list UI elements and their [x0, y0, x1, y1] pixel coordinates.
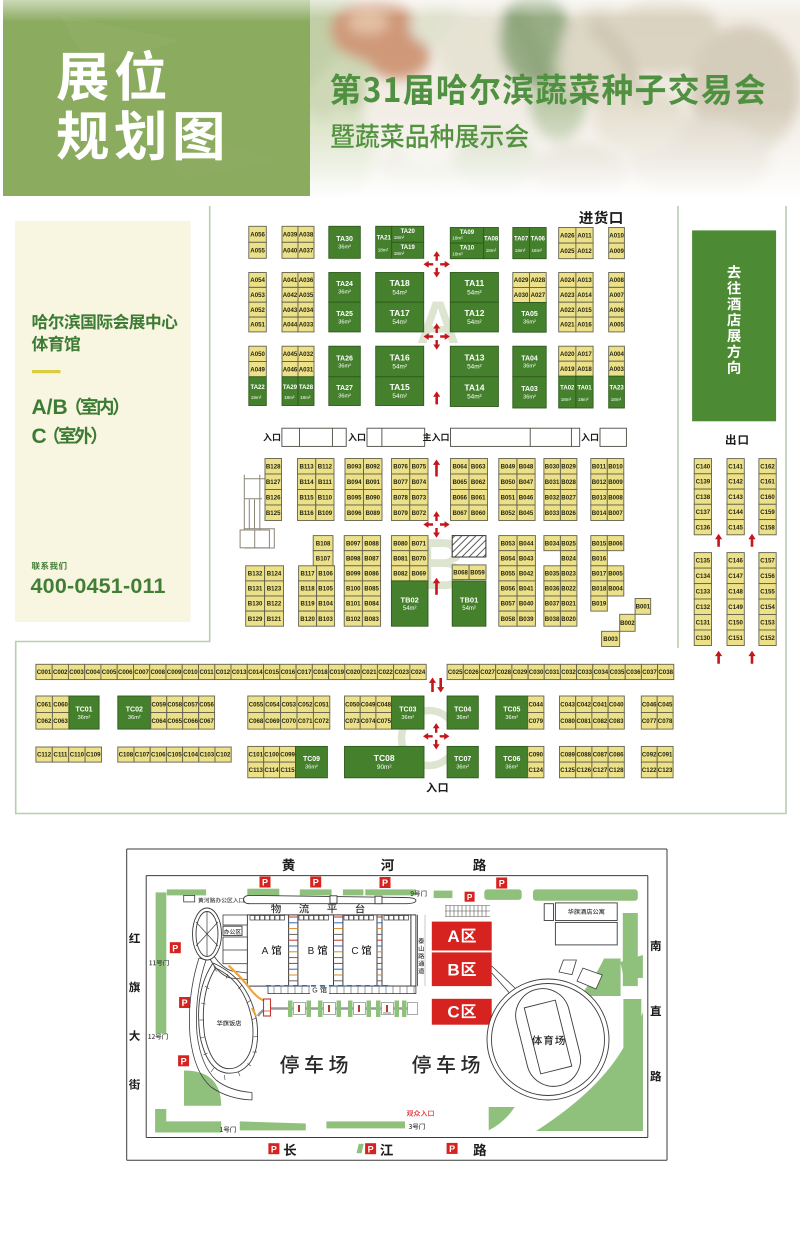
svg-text:B056: B056: [501, 586, 516, 593]
svg-text:B121: B121: [267, 616, 282, 623]
svg-text:A026: A026: [560, 233, 575, 240]
svg-text:A011: A011: [577, 233, 592, 240]
svg-text:C105: C105: [167, 752, 182, 759]
svg-text:C004: C004: [86, 669, 101, 676]
svg-text:C046: C046: [642, 701, 657, 708]
svg-text:B016: B016: [592, 555, 607, 562]
svg-text:B018: B018: [592, 586, 607, 593]
svg-text:A052: A052: [250, 307, 265, 314]
svg-text:A049: A049: [250, 366, 265, 373]
svg-text:C092: C092: [642, 751, 657, 758]
svg-text:A: A: [262, 946, 269, 957]
svg-text:36m²: 36m²: [456, 764, 469, 770]
svg-text:B043: B043: [519, 555, 534, 562]
svg-text:C066: C066: [183, 718, 198, 725]
svg-text:B010: B010: [608, 463, 623, 470]
svg-text:B113: B113: [299, 463, 314, 470]
svg-text:C154: C154: [760, 604, 775, 611]
svg-text:B129: B129: [248, 616, 263, 623]
svg-text:B086: B086: [364, 571, 379, 578]
svg-text:C073: C073: [345, 718, 360, 725]
svg-text:B012: B012: [592, 479, 607, 486]
svg-text:C029: C029: [513, 669, 528, 676]
svg-text:C104: C104: [183, 752, 198, 759]
svg-text:C142: C142: [728, 479, 743, 486]
svg-text:C124: C124: [529, 767, 544, 774]
svg-text:C132: C132: [696, 604, 711, 611]
svg-text:A031: A031: [299, 366, 314, 373]
svg-text:A044: A044: [283, 322, 298, 329]
svg-text:C031: C031: [545, 669, 560, 676]
svg-text:B006: B006: [608, 540, 623, 547]
svg-text:A045: A045: [283, 351, 298, 358]
svg-text:A008: A008: [609, 277, 624, 284]
svg-text:B068: B068: [453, 569, 468, 576]
svg-text:TA04: TA04: [521, 355, 538, 362]
svg-text:C040: C040: [609, 701, 624, 708]
svg-text:B017: B017: [592, 571, 607, 578]
svg-text:18m²: 18m²: [611, 397, 622, 402]
svg-text:C013: C013: [232, 669, 247, 676]
svg-text:B097: B097: [346, 540, 361, 547]
svg-text:B090: B090: [366, 494, 381, 501]
svg-text:C161: C161: [760, 479, 775, 486]
svg-text:C015: C015: [264, 669, 279, 676]
svg-text:54m²: 54m²: [462, 606, 476, 612]
svg-text:36m²: 36m²: [523, 395, 536, 401]
svg-text:B130: B130: [248, 601, 263, 608]
svg-text:C138: C138: [696, 494, 711, 501]
svg-text:C: C: [351, 946, 358, 957]
svg-text:18m²: 18m²: [452, 236, 463, 241]
svg-text:B046: B046: [519, 494, 534, 501]
svg-text:TA24: TA24: [336, 281, 353, 288]
svg-text:B079: B079: [393, 510, 408, 517]
svg-text:TA06: TA06: [531, 237, 546, 243]
svg-text:C064: C064: [152, 718, 167, 725]
svg-text:A010: A010: [609, 233, 624, 240]
svg-text:B047: B047: [519, 479, 534, 486]
svg-text:B091: B091: [366, 479, 381, 486]
svg-text:C102: C102: [216, 752, 231, 759]
svg-text:B118: B118: [300, 586, 315, 593]
svg-text:B126: B126: [266, 494, 281, 501]
svg-text:C056: C056: [199, 701, 214, 708]
svg-text:A038: A038: [299, 232, 314, 239]
svg-text:C060: C060: [53, 701, 68, 708]
svg-text:B109: B109: [318, 510, 333, 517]
svg-text:B128: B128: [266, 463, 281, 470]
svg-text:36m²: 36m²: [128, 715, 141, 721]
svg-text:C090: C090: [529, 751, 544, 758]
svg-text:P: P: [262, 878, 268, 888]
svg-text:B049: B049: [501, 463, 516, 470]
svg-text:A013: A013: [577, 277, 592, 284]
svg-text:C109: C109: [86, 752, 101, 759]
svg-text:TA22: TA22: [250, 385, 265, 391]
svg-text:B044: B044: [519, 540, 534, 547]
svg-text:A028: A028: [531, 277, 546, 284]
svg-text:C162: C162: [760, 463, 775, 470]
svg-text:TA03: TA03: [521, 386, 538, 393]
svg-text:A055: A055: [250, 248, 265, 255]
svg-text:B045: B045: [519, 510, 534, 517]
svg-text:A043: A043: [283, 307, 298, 314]
svg-text:B077: B077: [393, 479, 408, 486]
svg-text:B040: B040: [519, 601, 534, 608]
svg-text:B100: B100: [346, 586, 361, 593]
svg-text:A034: A034: [299, 307, 314, 314]
svg-text:B013: B013: [592, 494, 607, 501]
svg-text:A007: A007: [609, 292, 624, 299]
svg-text:B115: B115: [299, 494, 314, 501]
svg-text:C101: C101: [249, 751, 264, 758]
svg-text:A051: A051: [250, 322, 265, 329]
svg-text:C091: C091: [658, 751, 673, 758]
svg-text:B011: B011: [592, 463, 607, 470]
svg-text:C128: C128: [609, 767, 624, 774]
svg-text:A039: A039: [283, 232, 298, 239]
svg-text:B014: B014: [592, 510, 607, 517]
svg-text:B028: B028: [561, 479, 576, 486]
svg-text:TB01: TB01: [460, 595, 478, 604]
svg-text:A: A: [447, 927, 459, 946]
svg-text:B059: B059: [470, 569, 485, 576]
svg-text:C012: C012: [216, 669, 231, 676]
svg-text:B076: B076: [393, 463, 408, 470]
svg-text:C043: C043: [560, 701, 575, 708]
svg-text:C106: C106: [151, 752, 166, 759]
svg-text:90m²: 90m²: [377, 764, 392, 771]
svg-text:A003: A003: [609, 366, 624, 373]
svg-text:C145: C145: [728, 524, 743, 531]
svg-text:C050: C050: [345, 701, 360, 708]
svg-text:A018: A018: [577, 366, 592, 373]
svg-text:A017: A017: [577, 351, 592, 358]
svg-text:A050: A050: [250, 351, 265, 358]
svg-text:B066: B066: [453, 494, 468, 501]
svg-text:B023: B023: [561, 571, 576, 578]
svg-text:B112: B112: [318, 463, 333, 470]
svg-text:TA28: TA28: [299, 385, 314, 391]
svg-text:C071: C071: [298, 718, 313, 725]
svg-text:C044: C044: [529, 701, 544, 708]
svg-text:B101: B101: [346, 601, 361, 608]
svg-text:36m²: 36m²: [456, 715, 469, 721]
svg-text:B001: B001: [636, 604, 651, 611]
svg-text:B098: B098: [346, 555, 361, 562]
svg-text:C017: C017: [297, 669, 312, 676]
svg-text:TA15: TA15: [390, 382, 410, 392]
svg-text:C032: C032: [561, 669, 576, 676]
svg-text:18m²: 18m²: [251, 395, 262, 400]
svg-text:B064: B064: [453, 463, 468, 470]
svg-text:C037: C037: [642, 669, 657, 676]
svg-text:TC04: TC04: [454, 706, 471, 713]
svg-text:B026: B026: [561, 510, 576, 517]
svg-text:C141: C141: [728, 463, 743, 470]
svg-text:B065: B065: [453, 479, 468, 486]
svg-text:B110: B110: [318, 494, 333, 501]
svg-text:C068: C068: [249, 718, 264, 725]
svg-text:P: P: [271, 1144, 277, 1154]
svg-text:18m²: 18m²: [452, 251, 463, 256]
svg-text:C079: C079: [529, 718, 544, 725]
svg-text:400-0451-011: 400-0451-011: [31, 574, 166, 598]
svg-text:TA01: TA01: [577, 386, 592, 392]
svg-text:TA08: TA08: [484, 237, 499, 243]
svg-text:C049: C049: [361, 701, 376, 708]
svg-text:B004: B004: [608, 586, 623, 593]
svg-text:C051: C051: [314, 701, 329, 708]
svg-text:B088: B088: [364, 540, 379, 547]
svg-text:B033: B033: [545, 510, 560, 517]
svg-text:TC09: TC09: [303, 756, 320, 763]
svg-text:C038: C038: [658, 669, 673, 676]
svg-text:C148: C148: [728, 589, 743, 596]
svg-text:B020: B020: [561, 616, 576, 623]
svg-text:C053: C053: [282, 701, 297, 708]
svg-text:C137: C137: [696, 509, 711, 516]
svg-text:C055: C055: [249, 701, 264, 708]
svg-text:TA17: TA17: [390, 308, 410, 318]
svg-text:C100: C100: [264, 751, 279, 758]
svg-text:54m²: 54m²: [403, 606, 417, 612]
svg-text:B093: B093: [347, 463, 362, 470]
svg-text:C030: C030: [529, 669, 544, 676]
svg-text:B034: B034: [545, 540, 560, 547]
svg-text:36m²: 36m²: [505, 715, 518, 721]
svg-text:C115: C115: [280, 767, 295, 774]
svg-text:A021: A021: [560, 322, 575, 329]
svg-text:B062: B062: [471, 479, 486, 486]
svg-text:A042: A042: [283, 292, 298, 299]
svg-text:B111: B111: [318, 479, 333, 486]
svg-text:A036: A036: [299, 277, 314, 284]
svg-text:TA02: TA02: [560, 386, 575, 392]
svg-text:B096: B096: [347, 510, 362, 517]
svg-text:C112: C112: [37, 752, 52, 759]
svg-text:36m²: 36m²: [338, 245, 351, 251]
svg-text:C008: C008: [151, 669, 166, 676]
svg-text:G: G: [312, 988, 317, 995]
svg-text:B075: B075: [412, 463, 427, 470]
svg-text:B067: B067: [453, 510, 468, 517]
svg-text:C062: C062: [37, 718, 52, 725]
svg-text:C153: C153: [760, 620, 775, 627]
svg-text:A014: A014: [577, 292, 592, 299]
svg-text:A015: A015: [577, 307, 592, 314]
svg-text:B070: B070: [412, 555, 427, 562]
svg-text:C114: C114: [264, 767, 279, 774]
svg-text:36m²: 36m²: [338, 290, 351, 296]
svg-text:C156: C156: [760, 573, 775, 580]
svg-text:C007: C007: [134, 669, 149, 676]
svg-text:B117: B117: [300, 571, 315, 578]
svg-text:TC07: TC07: [454, 756, 471, 763]
svg-text:C005: C005: [102, 669, 117, 676]
svg-text:TA21: TA21: [377, 236, 392, 242]
svg-text:C160: C160: [760, 494, 775, 501]
svg-text:C158: C158: [760, 524, 775, 531]
svg-text:B042: B042: [519, 571, 534, 578]
svg-text:C002: C002: [53, 669, 68, 676]
svg-text:B122: B122: [267, 601, 282, 608]
svg-text:B084: B084: [364, 601, 379, 608]
svg-text:C054: C054: [265, 701, 280, 708]
svg-text:C131: C131: [696, 620, 711, 627]
svg-text:B081: B081: [393, 555, 408, 562]
svg-text:A037: A037: [299, 248, 314, 255]
svg-text:C072: C072: [314, 718, 329, 725]
svg-text:C024: C024: [411, 669, 426, 676]
svg-text:A/B: A/B: [32, 396, 68, 419]
svg-text:C087: C087: [593, 751, 608, 758]
svg-text:18m²: 18m²: [284, 395, 295, 400]
svg-text:B015: B015: [592, 540, 607, 547]
svg-text:C083: C083: [609, 718, 624, 725]
svg-text:C107: C107: [135, 752, 150, 759]
svg-text:54m²: 54m²: [392, 289, 407, 296]
svg-text:C010: C010: [183, 669, 198, 676]
svg-text:C027: C027: [480, 669, 495, 676]
svg-text:C023: C023: [395, 669, 410, 676]
svg-text:B108: B108: [316, 540, 331, 547]
svg-text:54m²: 54m²: [392, 319, 407, 326]
svg-text:C069: C069: [265, 718, 280, 725]
svg-text:B124: B124: [267, 571, 282, 578]
svg-text:C042: C042: [577, 701, 592, 708]
svg-text:C152: C152: [760, 635, 775, 642]
svg-text:C099: C099: [280, 751, 295, 758]
svg-text:C028: C028: [497, 669, 512, 676]
svg-text:C009: C009: [167, 669, 182, 676]
svg-text:C155: C155: [760, 589, 775, 596]
svg-text:A053: A053: [250, 292, 265, 299]
svg-text:B071: B071: [412, 540, 427, 547]
svg-text:A005: A005: [609, 322, 624, 329]
svg-text:C080: C080: [560, 718, 575, 725]
svg-text:B094: B094: [347, 479, 362, 486]
svg-text:C018: C018: [313, 669, 328, 676]
svg-text:P: P: [313, 878, 319, 888]
svg-text:C059: C059: [152, 701, 167, 708]
svg-text:54m²: 54m²: [392, 364, 407, 371]
svg-text:B038: B038: [545, 616, 560, 623]
svg-text:B025: B025: [561, 540, 576, 547]
svg-text:C147: C147: [728, 573, 743, 580]
svg-text:54m²: 54m²: [467, 289, 482, 296]
svg-text:36m²: 36m²: [305, 764, 318, 770]
svg-text:C110: C110: [70, 752, 85, 759]
svg-text:18m²: 18m²: [515, 248, 526, 253]
svg-text:P: P: [382, 878, 388, 888]
svg-text:TA16: TA16: [390, 352, 410, 362]
svg-text:C: C: [32, 425, 47, 448]
svg-text:18m²: 18m²: [578, 397, 589, 402]
svg-text:P: P: [467, 893, 473, 902]
svg-text:B021: B021: [561, 601, 576, 608]
svg-text:C016: C016: [281, 669, 296, 676]
svg-text:TC01: TC01: [75, 706, 92, 713]
svg-text:36m²: 36m²: [338, 364, 351, 370]
svg-text:B008: B008: [608, 494, 623, 501]
svg-text:TC03: TC03: [399, 706, 416, 713]
svg-text:C086: C086: [609, 751, 624, 758]
svg-text:18m²: 18m²: [300, 395, 311, 400]
svg-text:B073: B073: [412, 494, 427, 501]
svg-text:C159: C159: [760, 509, 775, 516]
svg-text:C058: C058: [167, 701, 182, 708]
svg-text:54m²: 54m²: [467, 364, 482, 371]
svg-text:B106: B106: [318, 571, 333, 578]
svg-text:B054: B054: [501, 555, 516, 562]
svg-text:C020: C020: [346, 669, 361, 676]
svg-text:B055: B055: [501, 571, 516, 578]
svg-text:C057: C057: [183, 701, 198, 708]
svg-text:B092: B092: [366, 463, 381, 470]
svg-text:B029: B029: [561, 463, 576, 470]
svg-text:C048: C048: [377, 701, 392, 708]
svg-text:B057: B057: [501, 601, 516, 608]
svg-text:TC02: TC02: [126, 706, 143, 713]
svg-text:P: P: [368, 1144, 374, 1154]
svg-text:C126: C126: [577, 767, 592, 774]
svg-text:B005: B005: [608, 571, 623, 578]
svg-text:B009: B009: [608, 479, 623, 486]
svg-text:C006: C006: [118, 669, 133, 676]
svg-text:C144: C144: [728, 509, 743, 516]
svg-text:TA11: TA11: [465, 278, 485, 288]
svg-text:A032: A032: [299, 351, 314, 358]
svg-text:TA12: TA12: [464, 308, 484, 318]
svg-text:C127: C127: [593, 767, 608, 774]
svg-text:TA18: TA18: [390, 278, 410, 288]
svg-text:TA05: TA05: [521, 311, 538, 318]
svg-text:A012: A012: [577, 248, 592, 255]
svg-text:B030: B030: [545, 463, 560, 470]
svg-text:A025: A025: [560, 248, 575, 255]
svg-text:C022: C022: [378, 669, 393, 676]
svg-text:C136: C136: [696, 524, 711, 531]
svg-text:TC05: TC05: [503, 706, 520, 713]
svg-text:B031: B031: [545, 479, 560, 486]
svg-text:B123: B123: [267, 586, 282, 593]
svg-text:TA27: TA27: [336, 385, 353, 392]
svg-text:B032: B032: [545, 494, 560, 501]
svg-text:B050: B050: [501, 479, 516, 486]
svg-text:C061: C061: [37, 701, 52, 708]
svg-text:C025: C025: [448, 669, 463, 676]
svg-text:B035: B035: [545, 571, 560, 578]
svg-text:B095: B095: [347, 494, 362, 501]
svg-text:18m²: 18m²: [394, 235, 405, 240]
svg-text:36m²: 36m²: [338, 319, 351, 325]
svg-text:C146: C146: [728, 558, 743, 565]
svg-text:B089: B089: [366, 510, 381, 517]
svg-text:C021: C021: [362, 669, 377, 676]
svg-text:C011: C011: [199, 669, 214, 676]
svg-text:TA23: TA23: [609, 386, 624, 392]
svg-text:B131: B131: [248, 586, 263, 593]
svg-text:B022: B022: [561, 586, 576, 593]
svg-text:TC06: TC06: [503, 756, 520, 763]
svg-text:C143: C143: [728, 494, 743, 501]
svg-text:TA07: TA07: [514, 237, 529, 243]
svg-text:18m²: 18m²: [378, 247, 389, 252]
svg-text:A016: A016: [577, 322, 592, 329]
svg-text:C001: C001: [37, 669, 52, 676]
